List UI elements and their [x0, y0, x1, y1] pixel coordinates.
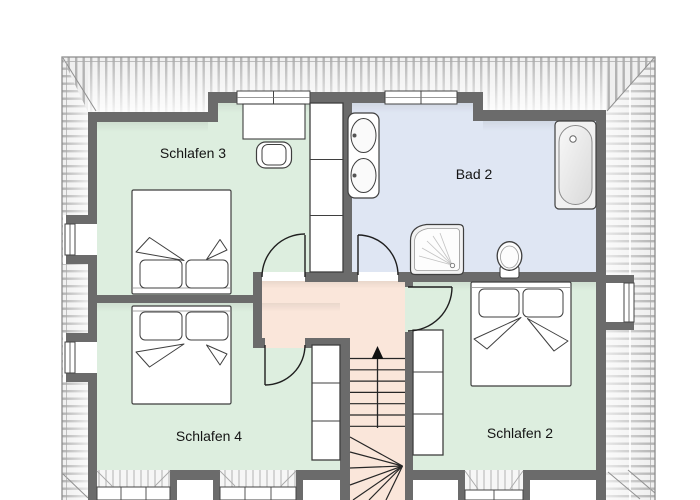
- window-bad-2: [385, 91, 457, 104]
- floor-plan-drawing: Schlafen 3 Bad 2 Schlafen 4 Schlafen 2: [0, 0, 700, 500]
- dormer-window-left-lower: [63, 333, 97, 382]
- room-label-schlafen-2: Schlafen 2: [487, 425, 553, 441]
- shower: [411, 225, 464, 275]
- window-icon: [220, 487, 296, 500]
- bed-schlafen-3: [132, 190, 231, 294]
- window-icon: [97, 487, 170, 500]
- pillow: [479, 289, 519, 317]
- pillow: [186, 260, 228, 288]
- pillow: [523, 289, 563, 317]
- bottom-dormer-schlafen2: [465, 470, 523, 500]
- pillow: [140, 312, 182, 340]
- bed-schlafen-2: [471, 282, 571, 386]
- desk-chair: [257, 142, 292, 168]
- room-label-schlafen-3: Schlafen 3: [160, 145, 226, 161]
- bottom-dormer-schlafen4-right: [220, 470, 296, 500]
- wardrobe-schlafen-4: [312, 345, 340, 460]
- room-label-schlafen-4: Schlafen 4: [176, 428, 242, 444]
- double-washbasin: [348, 113, 379, 198]
- floor-plan-canvas: Schlafen 3 Bad 2 Schlafen 4 Schlafen 2: [0, 0, 700, 500]
- dormer-window-right: [606, 275, 634, 330]
- room-label-bad-2: Bad 2: [456, 166, 493, 182]
- dormer-window-left-upper: [63, 215, 97, 264]
- bathtub: [555, 121, 596, 209]
- drain-icon: [570, 136, 576, 142]
- pillow: [140, 260, 182, 288]
- bed-schlafen-4: [132, 306, 231, 404]
- wardrobe-schlafen-2: [413, 330, 443, 455]
- bottom-dormer-schlafen4-left: [97, 470, 170, 500]
- faucet-icon: [353, 174, 357, 178]
- toilet: [497, 242, 522, 278]
- window-schlafen-3: [237, 91, 310, 104]
- pillow: [186, 312, 228, 340]
- wardrobe-schlafen-3: [310, 103, 343, 272]
- desk: [243, 104, 305, 139]
- faucet-icon: [353, 134, 357, 138]
- drain-icon: [450, 263, 454, 267]
